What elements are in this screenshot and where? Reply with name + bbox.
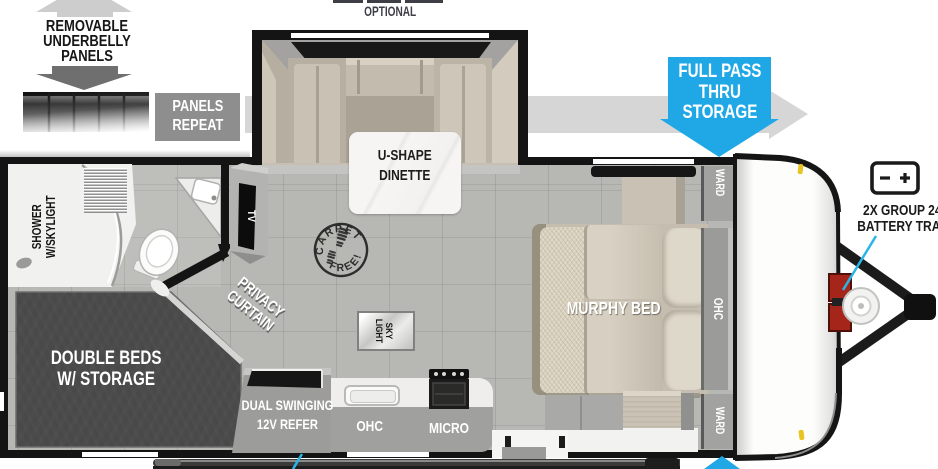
svg-text:TV: TV: [245, 210, 257, 222]
svg-text:PANELS: PANELS: [61, 48, 113, 65]
